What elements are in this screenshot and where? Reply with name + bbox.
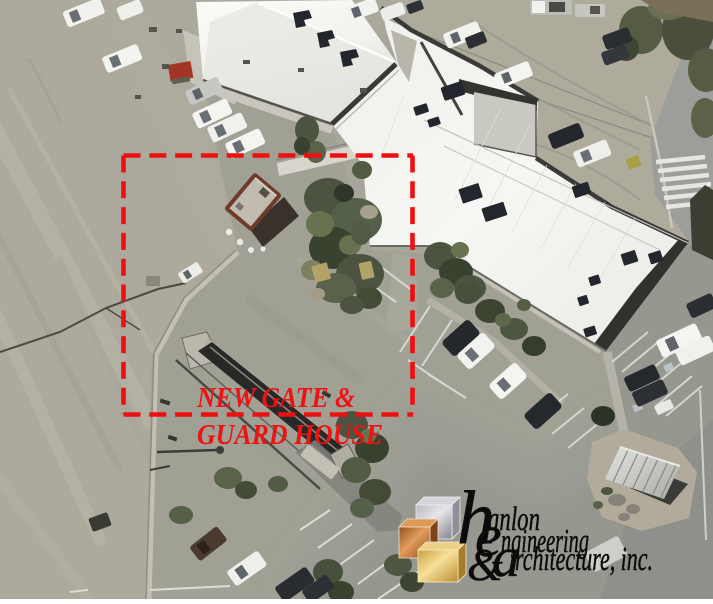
svg-text:NEW GATE &: NEW GATE & bbox=[196, 383, 355, 414]
svg-text:GUARD HOUSE: GUARD HOUSE bbox=[197, 420, 383, 451]
svg-text:rchitecture, inc.: rchitecture, inc. bbox=[515, 541, 653, 578]
